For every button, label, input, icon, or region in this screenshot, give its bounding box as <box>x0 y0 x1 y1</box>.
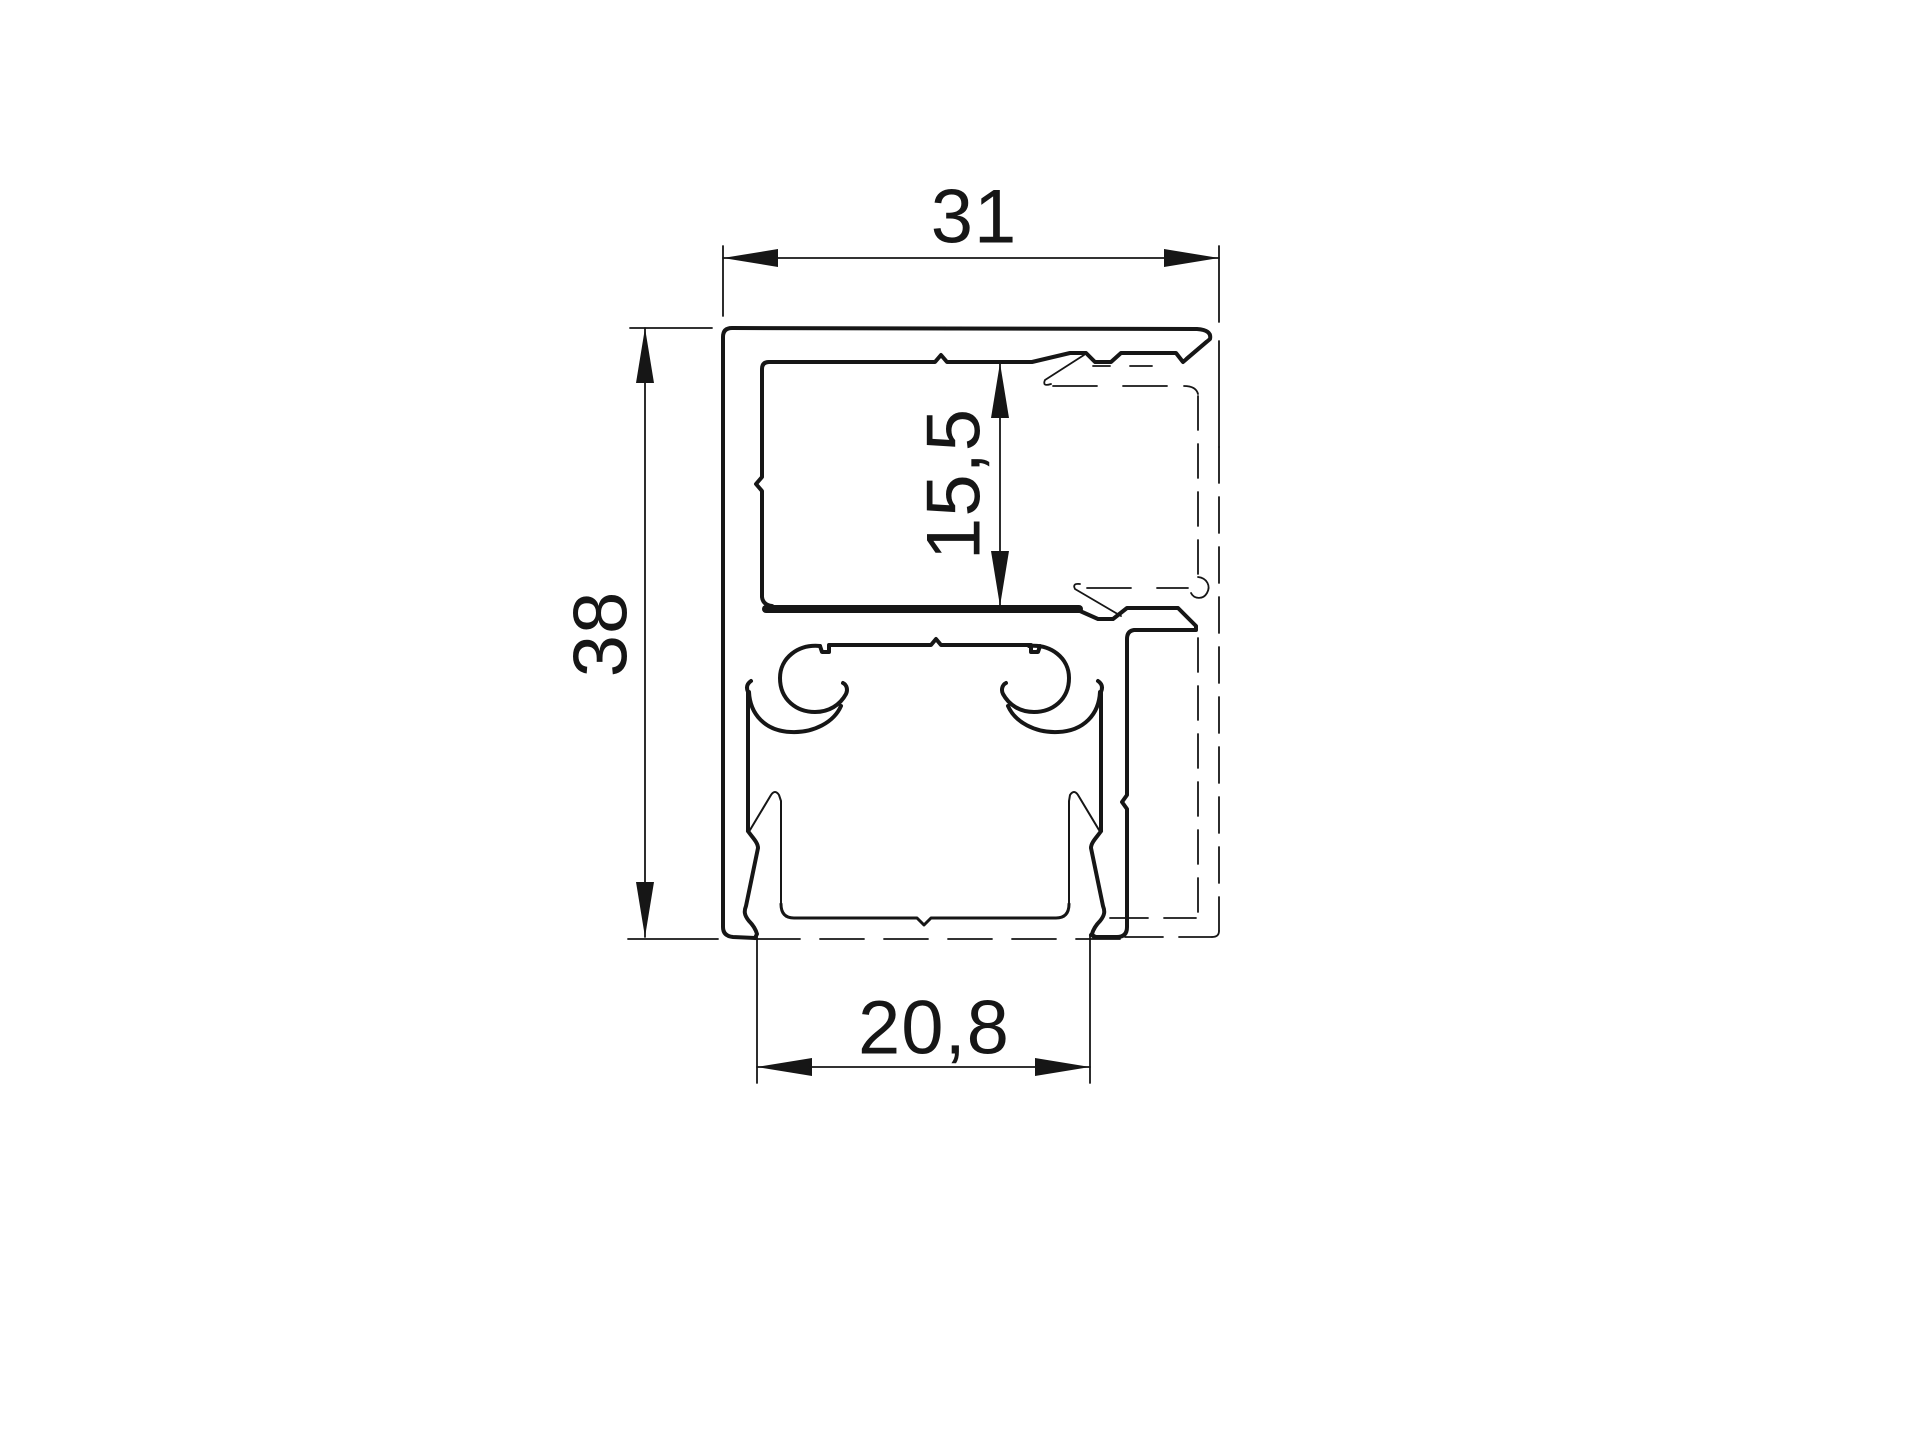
phantom-bottom-corner <box>1212 931 1219 937</box>
wedge-inner-line <box>1186 341 1206 358</box>
drawing-sheet: 31 38 15,5 20,8 <box>0 0 1919 1440</box>
dimension-label-channel-width: 20,8 <box>858 986 1010 1071</box>
dimension-label-total-height: 38 <box>559 591 644 678</box>
middle-shelf <box>820 639 1040 652</box>
profile-cross-section-drawing: 31 38 15,5 20,8 <box>0 0 1919 1440</box>
left-barb <box>745 831 758 938</box>
dimension-labels: 31 38 15,5 20,8 <box>559 175 1018 1071</box>
dimension-annotations <box>628 246 1219 1083</box>
channel-floor <box>781 904 1069 925</box>
right-barb <box>1091 831 1104 937</box>
phantom-top-corner <box>1184 386 1198 394</box>
arrow-20-8-right <box>1035 1058 1090 1076</box>
dimension-label-chamber-height: 15,5 <box>912 408 997 560</box>
arrow-38-bottom <box>636 882 654 937</box>
left-barb-inner <box>750 792 781 904</box>
dimension-label-total-width: 31 <box>931 175 1018 260</box>
left-screw-boss-bore <box>780 646 847 712</box>
arrow-31-right <box>1164 249 1219 267</box>
right-barb-inner <box>1069 792 1099 904</box>
arrow-20-8-left <box>757 1058 812 1076</box>
right-screw-boss-bore <box>1002 646 1069 712</box>
arrow-31-left <box>723 249 778 267</box>
phantom-hook <box>1191 577 1209 598</box>
arrow-38-top <box>636 328 654 383</box>
